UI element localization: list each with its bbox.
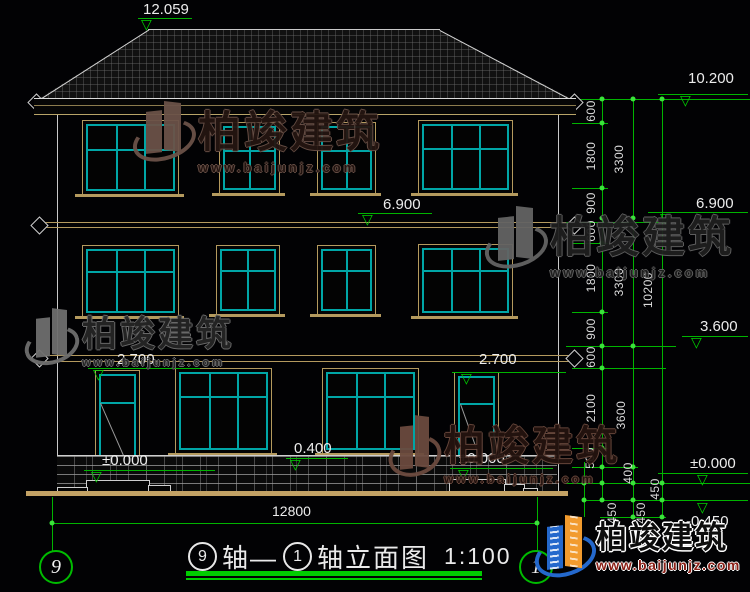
level-roof-peak: 12.059 bbox=[143, 1, 189, 18]
watermark-url: www.baijunjz.com bbox=[550, 265, 734, 280]
watermark-logo-icon bbox=[488, 203, 542, 265]
title-text: 轴— bbox=[222, 538, 278, 575]
dim-label: 400 bbox=[621, 462, 635, 484]
watermark-url: www.baijunjz.com bbox=[444, 472, 620, 486]
level-door-head: 2.700 bbox=[479, 351, 517, 368]
dimension-chain-line bbox=[633, 99, 634, 517]
title-underline bbox=[186, 571, 482, 576]
elevation-triangle-icon: ▽ bbox=[691, 336, 702, 348]
dim-label: 600 bbox=[584, 346, 598, 368]
level-belt: 3.600 bbox=[700, 318, 738, 335]
level-zero: ±0.000 bbox=[102, 452, 148, 469]
site-logo-url: www.baijunjz.com bbox=[596, 557, 741, 573]
window-sill bbox=[212, 193, 285, 196]
watermark: 柏竣建筑 www.baijunjz.com bbox=[136, 98, 382, 175]
watermark-url: www.baijunjz.com bbox=[82, 357, 234, 369]
window bbox=[175, 368, 272, 454]
site-logo-icon bbox=[538, 512, 590, 574]
elevation-drawing-canvas: 12.059 ▽ bbox=[0, 0, 750, 592]
elevation-triangle-icon: ▽ bbox=[91, 470, 102, 482]
window bbox=[216, 245, 280, 315]
dim-label: 900 bbox=[584, 318, 598, 340]
watermark-logo-icon bbox=[28, 306, 74, 362]
title-underline bbox=[186, 578, 482, 580]
watermark-brand: 柏竣建筑 bbox=[198, 98, 382, 160]
title-text: 轴立面图 bbox=[317, 538, 429, 575]
elevation-triangle-icon: ▽ bbox=[461, 372, 472, 384]
window-sill bbox=[310, 193, 381, 196]
title-scale: 1:100 bbox=[444, 543, 512, 570]
belt-left-molding bbox=[30, 216, 48, 234]
level-zero: ±0.000 bbox=[690, 455, 736, 472]
watermark-url: www.baijunjz.com bbox=[198, 160, 382, 175]
watermark-logo-icon bbox=[136, 98, 190, 158]
elevation-triangle-icon: ▽ bbox=[290, 458, 301, 470]
elevation-triangle-icon: ▽ bbox=[141, 18, 152, 30]
roof-tile-hatch bbox=[34, 28, 576, 99]
window bbox=[317, 245, 376, 315]
window-sill bbox=[411, 316, 518, 319]
elevation-triangle-icon: ▽ bbox=[697, 473, 708, 485]
elevation-triangle-icon: ▽ bbox=[362, 213, 373, 225]
window-sill bbox=[411, 193, 518, 196]
overall-dim-line bbox=[52, 523, 537, 524]
watermark-logo-icon bbox=[392, 412, 436, 474]
level-floor3: 6.900 bbox=[383, 196, 421, 213]
dim-label: 450 bbox=[648, 478, 662, 500]
watermark-brand: 柏竣建筑 bbox=[82, 306, 234, 357]
site-logo: 柏竣建筑 www.baijunjz.com bbox=[538, 512, 741, 574]
watermark: 柏竣建筑 www.baijunjz.com bbox=[488, 203, 734, 280]
watermark: 柏竣建筑 www.baijunjz.com bbox=[392, 412, 620, 486]
dimension-chain-line bbox=[662, 99, 663, 517]
level-plinth: 0.400 bbox=[294, 440, 332, 457]
window-sill bbox=[310, 314, 381, 317]
axis-bubble-9: 9 bbox=[39, 550, 73, 584]
level-eave: 10.200 bbox=[688, 70, 734, 87]
drawing-title: 9 轴— 1 轴立面图 1:100 bbox=[188, 538, 512, 575]
watermark-brand: 柏竣建筑 bbox=[550, 203, 734, 265]
dim-label: 600 bbox=[584, 100, 598, 122]
dim-label: 1800 bbox=[584, 142, 598, 171]
roof-ridge-line bbox=[148, 29, 440, 30]
dim-label: 3300 bbox=[612, 145, 626, 174]
site-logo-brand: 柏竣建筑 bbox=[596, 512, 741, 557]
elevation-triangle-icon: ▽ bbox=[93, 368, 104, 380]
elevation-triangle-icon: ▽ bbox=[680, 94, 691, 106]
ground-line bbox=[26, 491, 568, 496]
window bbox=[418, 120, 513, 194]
overall-width-dim: 12800 bbox=[272, 503, 311, 519]
window-sill bbox=[75, 194, 184, 197]
watermark-brand: 柏竣建筑 bbox=[444, 412, 620, 472]
belt-right-molding bbox=[565, 349, 583, 367]
watermark: 柏竣建筑 www.baijunjz.com bbox=[28, 306, 234, 369]
title-axis-bubble: 9 bbox=[188, 542, 217, 571]
title-axis-bubble: 1 bbox=[283, 542, 312, 571]
